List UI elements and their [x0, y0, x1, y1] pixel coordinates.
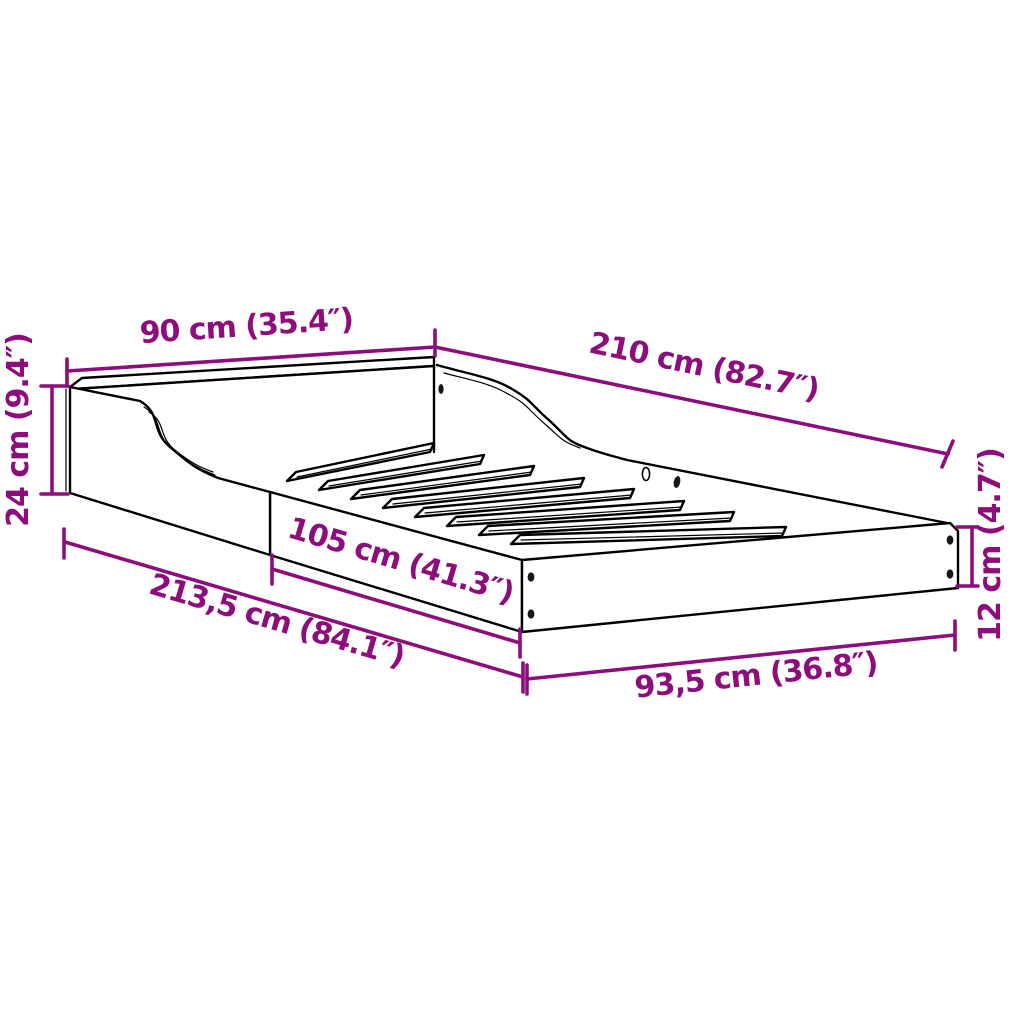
diagram-canvas: 90 cm (35.4″) 210 cm (82.7″) 24 cm (9.4″…: [0, 0, 1024, 1024]
dimension-label-headboard-width: 90 cm (35.4″): [139, 302, 354, 351]
dimension-label-headboard-height: 24 cm (9.4″): [1, 333, 36, 527]
dimension-label-frame-length-top: 210 cm (82.7″): [586, 326, 822, 408]
dimension-foot-height: 12 cm (4.7″): [957, 448, 1008, 642]
bed-frame-dimension-diagram: 90 cm (35.4″) 210 cm (82.7″) 24 cm (9.4″…: [0, 0, 1024, 1024]
dimension-foot-width: 93,5 cm (36.8″): [527, 621, 955, 706]
dimension-headboard-height: 24 cm (9.4″): [1, 333, 68, 527]
dimension-label-foot-height: 12 cm (4.7″): [973, 448, 1008, 642]
